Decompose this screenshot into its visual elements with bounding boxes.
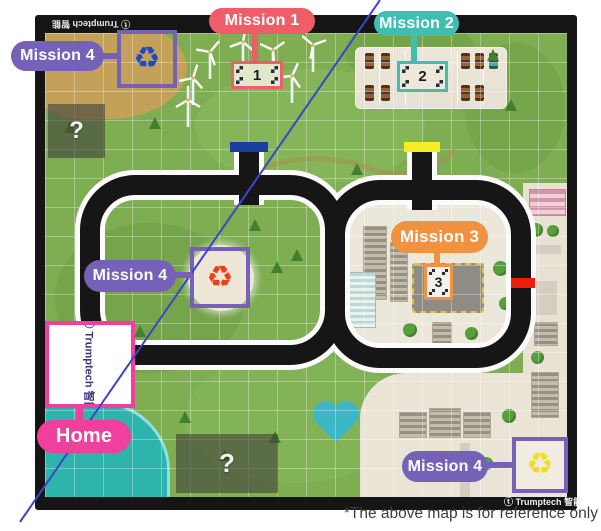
mission4-recycle-box-blue: ♻ xyxy=(117,30,177,88)
question-mark: ? xyxy=(219,448,235,479)
mission4-recycle-box-yellow: ♻ xyxy=(512,437,568,493)
start-marker-yellow xyxy=(404,142,440,152)
caption: *The above map is for reference only xyxy=(340,505,598,523)
question-mark: ? xyxy=(69,117,84,145)
start-marker-blue xyxy=(230,142,268,152)
mission4a-callout: Mission 4 xyxy=(11,41,104,71)
recycle-red-icon: ♻ xyxy=(207,263,234,293)
mission2-callout-stem xyxy=(411,33,417,63)
game-mat-reference-image: ⓣ Trumptech 智能 ⓣ Trumptech 智能 ? ? 1 2 3 … xyxy=(0,0,601,531)
mission3-callout: Mission 3 xyxy=(391,221,488,253)
mission4-recycle-box-red: ♻ xyxy=(190,247,250,308)
mission2-target-box: 2 xyxy=(397,61,448,92)
mission1-callout: Mission 1 xyxy=(209,8,315,34)
recycle-yellow-icon: ♻ xyxy=(527,450,554,480)
mission4b-callout: Mission 4 xyxy=(84,260,176,292)
mission4c-callout: Mission 4 xyxy=(402,451,488,482)
question-zone-left: ? xyxy=(48,104,105,158)
mission1-number: 1 xyxy=(253,67,261,84)
brand-icon: ⓣ xyxy=(121,19,130,29)
mission2-number: 2 xyxy=(418,68,426,85)
question-zone-bottom: ? xyxy=(176,434,278,493)
stop-marker-red xyxy=(511,278,535,288)
brand-icon: ⓣ xyxy=(83,321,95,328)
mission1-callout-stem xyxy=(252,30,258,63)
mission2-callout: Mission 2 xyxy=(374,11,459,36)
mission1-target-box: 1 xyxy=(231,61,283,89)
trumptech-logo-home: ⓣ Trumptech 智能 xyxy=(82,321,98,408)
mission3-target-box: 3 xyxy=(424,264,453,300)
home-base-box: ⓣ Trumptech 智能 xyxy=(45,321,135,408)
home-callout: Home xyxy=(37,420,131,453)
mission3-number: 3 xyxy=(435,274,443,290)
recycle-blue-icon: ♻ xyxy=(134,44,161,74)
mission4c-callout-stem xyxy=(484,462,514,468)
